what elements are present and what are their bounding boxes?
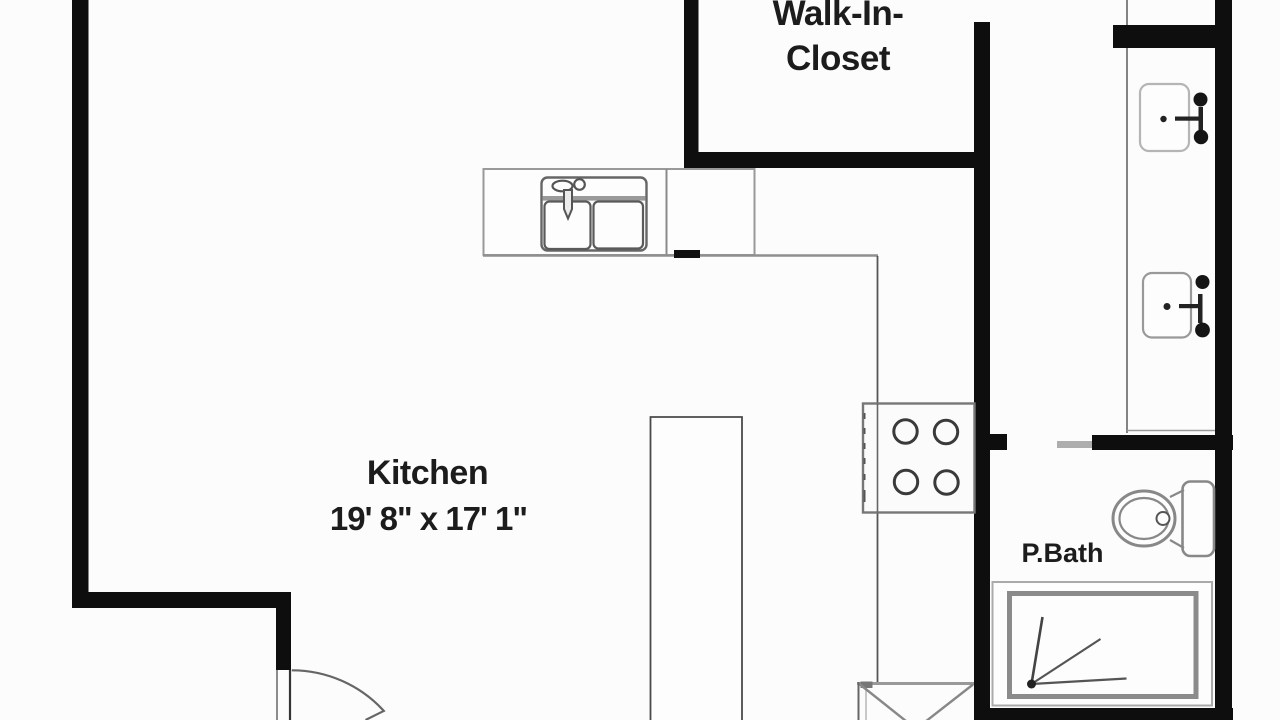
- svg-text:Closet: Closet: [786, 39, 891, 78]
- svg-text:Walk-In-: Walk-In-: [773, 0, 904, 33]
- svg-text:P.Bath: P.Bath: [1021, 538, 1103, 568]
- svg-text:19' 8" x 17' 1": 19' 8" x 17' 1": [330, 500, 527, 537]
- svg-text:Kitchen: Kitchen: [367, 454, 488, 492]
